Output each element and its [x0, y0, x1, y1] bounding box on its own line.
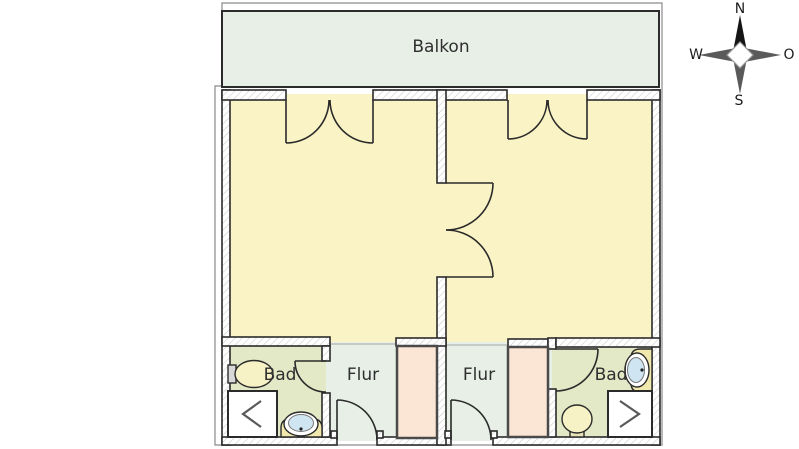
compass-label-south: S: [735, 93, 744, 109]
closet-hall-left: [397, 346, 437, 438]
compass-rose: N W O S: [689, 1, 794, 109]
hall-left-label: Flur: [347, 365, 379, 385]
balcony-label: Balkon: [412, 37, 469, 57]
wall-segment: [437, 90, 446, 183]
bath-left-label: Bad: [264, 365, 297, 385]
hall-right-label: Flur: [463, 365, 495, 385]
door-jamb: [331, 431, 337, 438]
wall-segment: [652, 90, 660, 445]
compass-label-west: W: [689, 47, 703, 63]
compass-label-east: O: [783, 47, 794, 63]
wall-segment: [222, 337, 330, 346]
door-jamb: [445, 431, 451, 438]
door-jamb: [491, 431, 497, 438]
wall-segment: [437, 277, 446, 445]
wall-segment: [322, 346, 330, 361]
bath-right-label: Bad: [595, 365, 628, 385]
floor-plan: Balkon Bad Flur Flur Bad N W O S: [0, 0, 799, 449]
drain-dot: [640, 368, 643, 371]
wall-segment: [222, 437, 337, 445]
shower-icon: [228, 391, 277, 437]
wall-segment: [556, 338, 660, 347]
compass-center: [727, 42, 753, 68]
wall-segment: [322, 393, 330, 437]
toilet-icon: [562, 405, 592, 433]
compass-label-north: N: [735, 1, 745, 17]
wall-segment: [222, 90, 286, 100]
drain-dot: [299, 427, 302, 430]
door-jamb: [377, 431, 383, 438]
wall-segment: [587, 90, 660, 100]
closet-hall-right: [508, 347, 548, 437]
shower-icon: [608, 391, 652, 437]
floor-plan-page: Balkon Bad Flur Flur Bad N W O S: [0, 0, 799, 449]
